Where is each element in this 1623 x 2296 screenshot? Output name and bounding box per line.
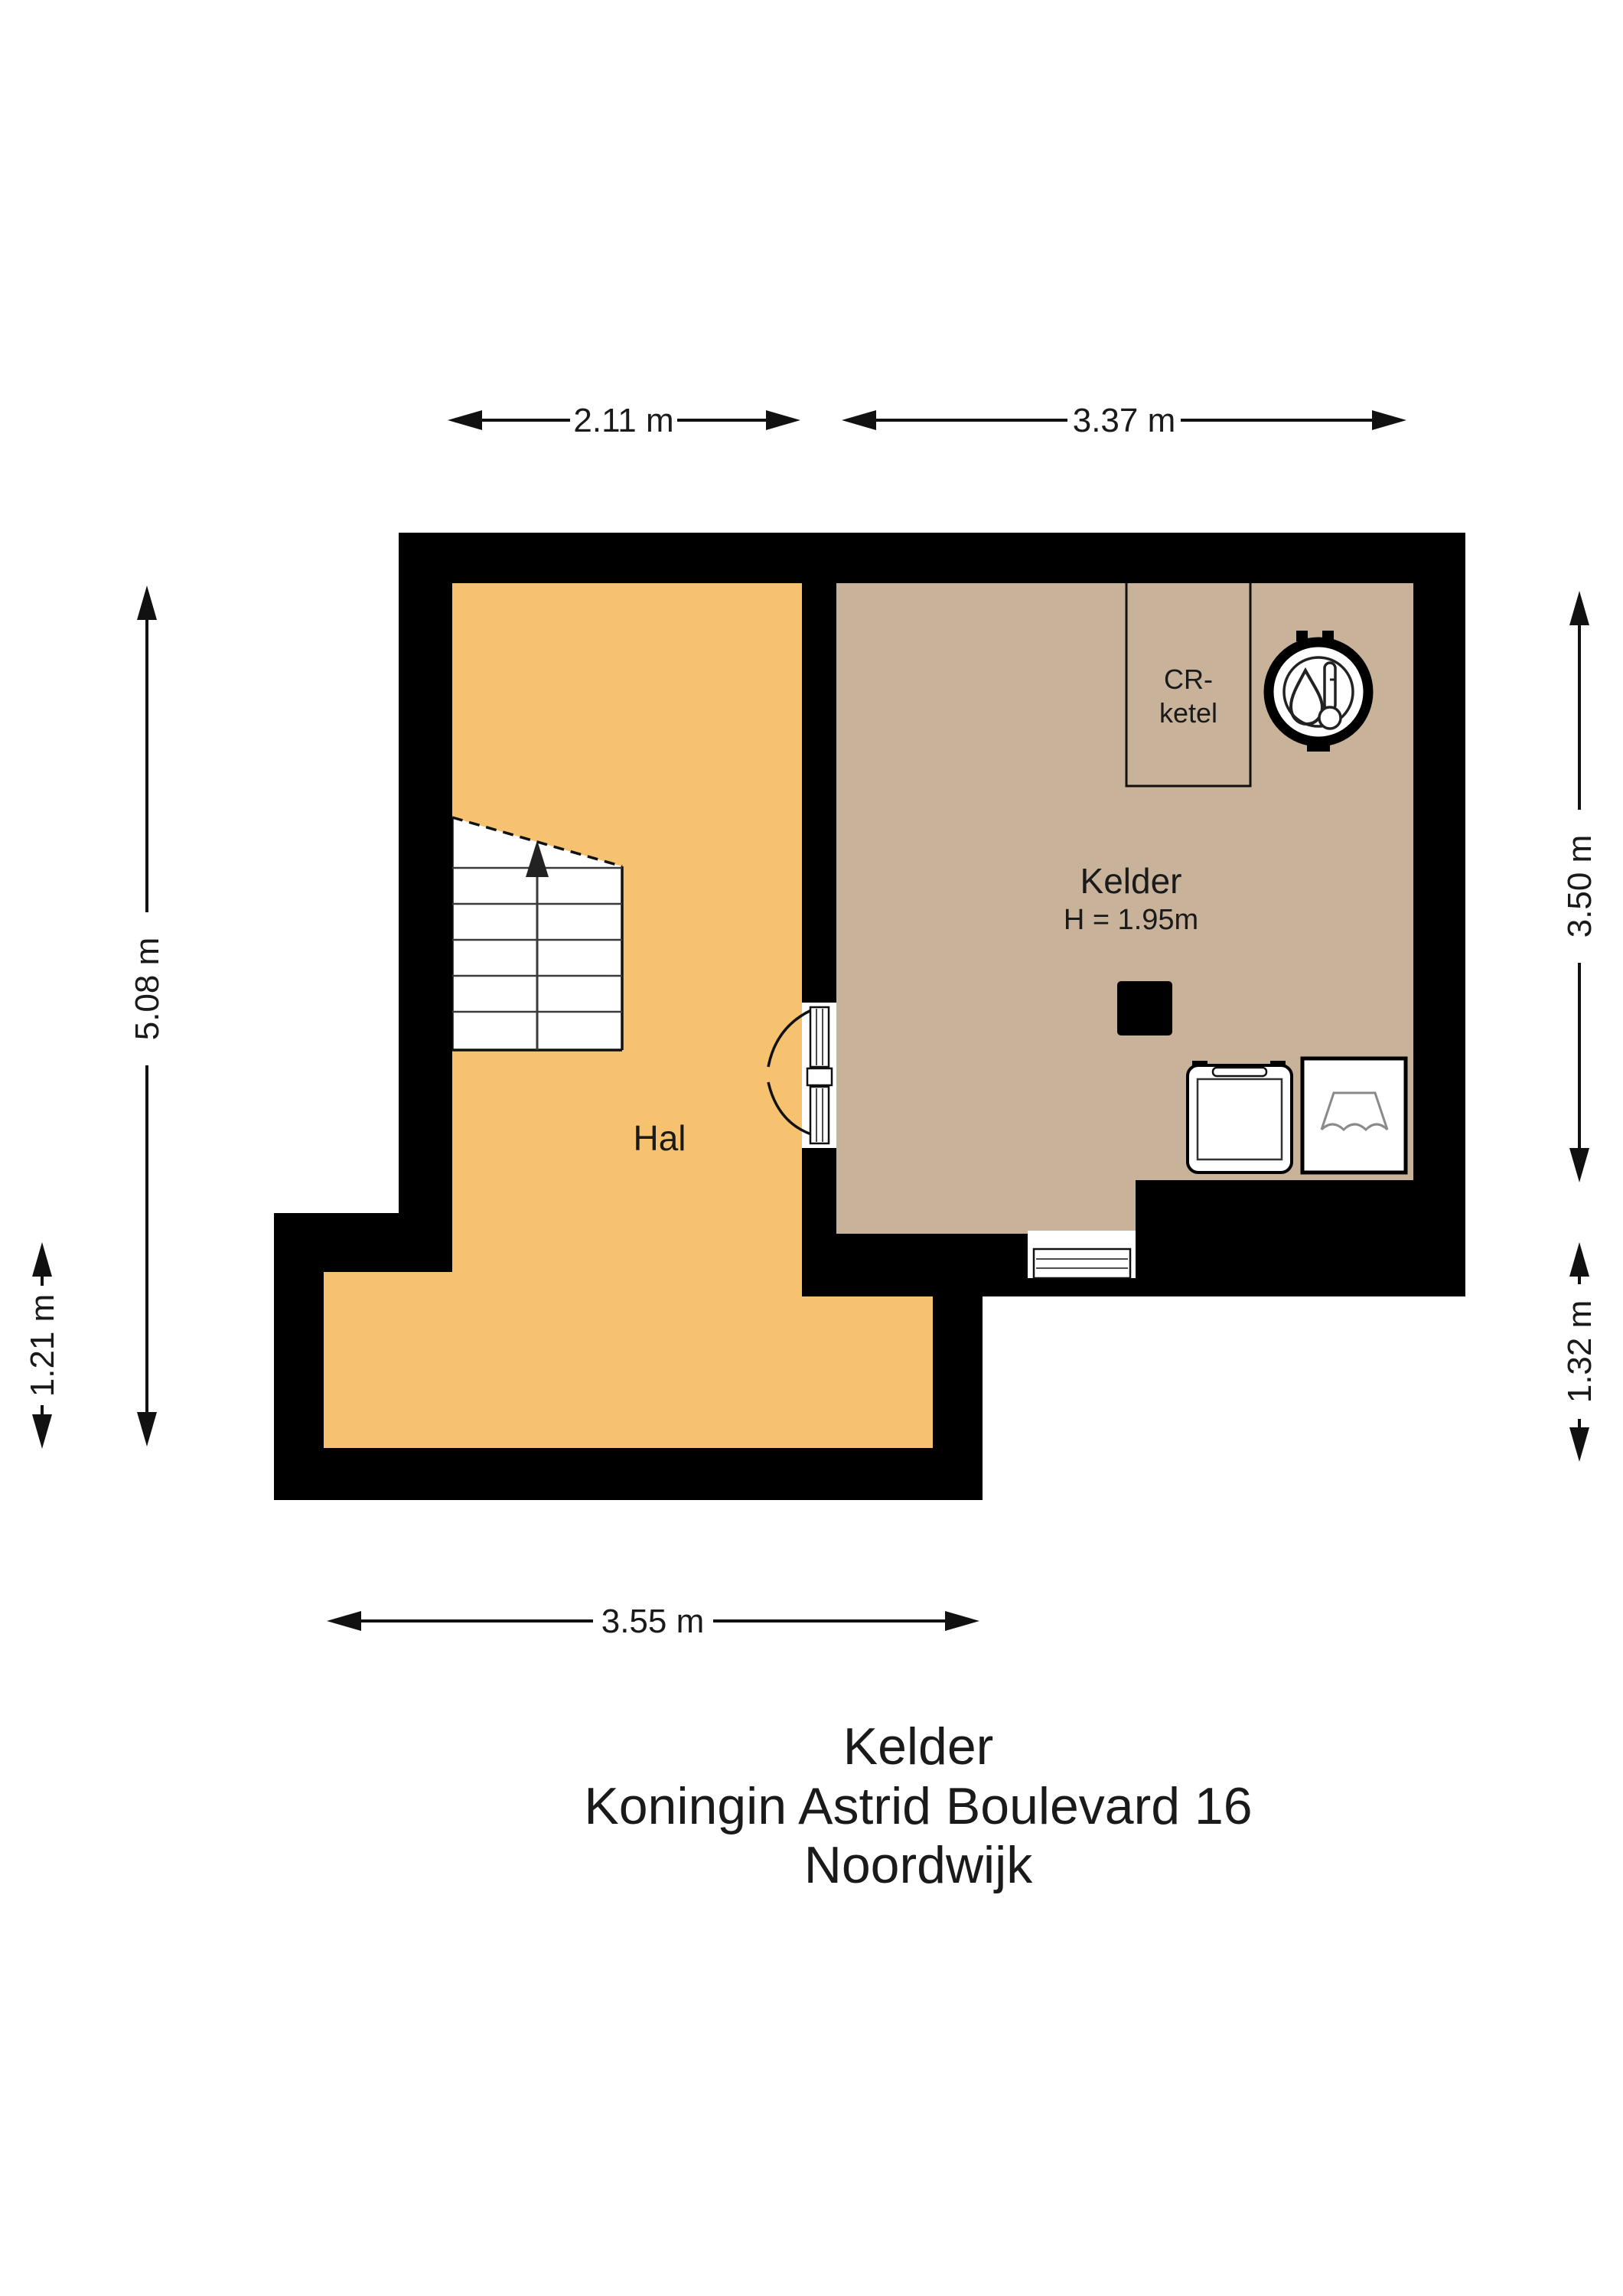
kelder-height-label: H = 1.95m: [1064, 904, 1198, 936]
dimension-left-full-label: 5.08 m: [129, 938, 166, 1041]
door-bottom-hatch: [1028, 1231, 1136, 1296]
arrowhead-icon: [32, 1242, 52, 1277]
cr-ketel-label-line2: ketel: [1159, 697, 1217, 729]
hatch-panel: [1034, 1249, 1130, 1278]
arrowhead-icon: [766, 410, 800, 430]
dimension-top-right: 3.37 m: [842, 402, 1406, 439]
dimension-left-lower-label: 1.21 m: [24, 1294, 61, 1397]
arrowhead-icon: [842, 410, 876, 430]
hal-label: Hal: [633, 1118, 686, 1158]
dimension-top-left-label: 2.11 m: [573, 402, 673, 439]
arrowhead-icon: [32, 1414, 52, 1449]
kelder-label: Kelder: [1080, 861, 1182, 901]
dimension-bottom: 3.55 m: [327, 1603, 979, 1640]
arrowhead-icon: [1372, 410, 1406, 430]
dimension-right-lower: 1.32 m: [1561, 1242, 1599, 1462]
wall-central: [802, 583, 836, 1262]
floorplan-canvas: Hal Kelder H = 1.95m CR- ketel 2.11 m 3.…: [0, 0, 1623, 2296]
dimension-right-upper-label: 3.50 m: [1561, 835, 1599, 938]
arrowhead-icon: [1569, 1148, 1589, 1182]
dimension-top-right-label: 3.37 m: [1073, 402, 1176, 439]
chimney-square: [1117, 981, 1172, 1035]
door-panel-top: [810, 1007, 829, 1067]
title-block: Kelder Koningin Astrid Boulevard 16 Noor…: [584, 1717, 1252, 1894]
washer-slot: [1213, 1068, 1266, 1076]
door-panel-bottom: [810, 1087, 829, 1143]
dimension-right-upper: 3.50 m: [1561, 591, 1599, 1182]
dimension-left-full: 5.08 m: [129, 585, 166, 1446]
hal-floor-lower: [324, 1272, 933, 1448]
dimension-bottom-label: 3.55 m: [601, 1603, 705, 1640]
title-line1: Kelder: [843, 1717, 994, 1776]
arrowhead-icon: [137, 1412, 157, 1446]
dryer-icon: [1302, 1058, 1406, 1172]
boiler-thermometer-stem: [1325, 663, 1335, 710]
arrowhead-icon: [327, 1611, 361, 1631]
door-middle-box: [807, 1068, 832, 1085]
washer-drum: [1198, 1079, 1282, 1159]
arrowhead-icon: [945, 1611, 979, 1631]
wall-bottom: [274, 1448, 983, 1500]
title-line2: Koningin Astrid Boulevard 16: [584, 1777, 1252, 1835]
boiler-thermometer-bulb: [1319, 707, 1341, 729]
dimension-right-lower-label: 1.32 m: [1561, 1300, 1599, 1404]
dimension-left-lower: 1.21 m: [24, 1242, 61, 1449]
washer-icon: [1188, 1061, 1292, 1172]
wall-kelder-bottom-right: [1136, 1180, 1465, 1296]
cr-ketel-label-line1: CR-: [1164, 664, 1213, 695]
title-line3: Noordwijk: [804, 1836, 1034, 1894]
arrowhead-icon: [448, 410, 482, 430]
wall-top: [399, 533, 1465, 583]
dimension-top-left: 2.11 m: [448, 402, 800, 439]
arrowhead-icon: [1569, 1427, 1589, 1462]
hatch-below: [1028, 1278, 1136, 1296]
wall-left: [399, 533, 452, 1272]
arrowhead-icon: [137, 585, 157, 620]
dryer-body: [1302, 1058, 1406, 1172]
arrowhead-icon: [1569, 591, 1589, 625]
arrowhead-icon: [1569, 1242, 1589, 1277]
